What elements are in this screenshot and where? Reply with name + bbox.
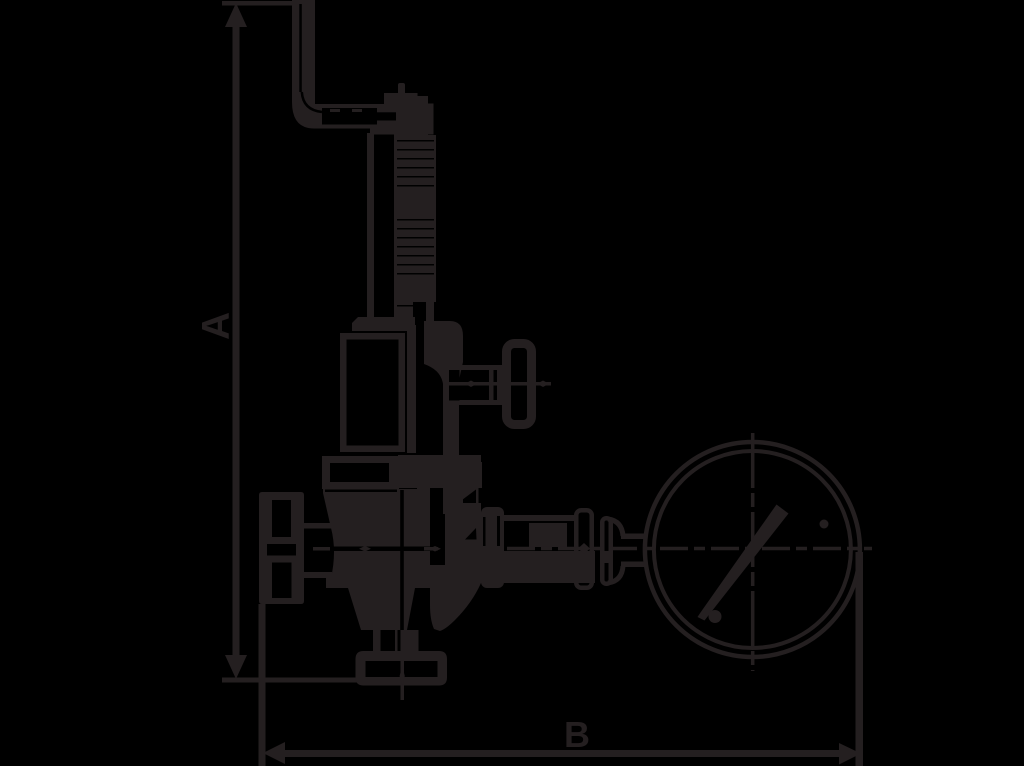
svg-text:B: B xyxy=(564,714,590,755)
svg-text:A: A xyxy=(195,312,238,340)
